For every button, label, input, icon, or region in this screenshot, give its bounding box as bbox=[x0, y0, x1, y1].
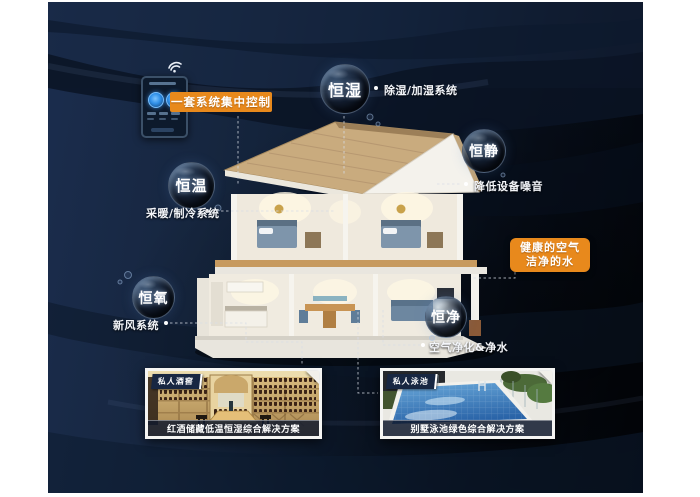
note-temperature-system: 采暖/制冷系统 bbox=[146, 205, 220, 221]
healthy-air-water-box: 健康的空气 洁净的水 bbox=[510, 238, 590, 272]
panel-stat bbox=[147, 118, 154, 120]
panel-stat bbox=[171, 118, 178, 120]
pool-card-corner-fold bbox=[539, 371, 552, 384]
pool-card: 私人泳池 别墅泳池绿色综合解决方案 bbox=[380, 368, 555, 439]
panel-stat bbox=[147, 112, 156, 115]
central-control-text: 一套系统集中控制 bbox=[171, 94, 271, 110]
bubble-label: 恒湿 bbox=[328, 77, 362, 101]
poster-page: 一套系统集中控制 健康的空气 洁净的水 恒湿 恒静 恒温 恒氧 恒净 除湿/加湿… bbox=[0, 0, 700, 497]
note-purity-system: 空气净化&净水 bbox=[429, 339, 508, 355]
note-quiet-system: 降低设备噪音 bbox=[474, 178, 543, 194]
pool-card-tag: 私人泳池 bbox=[386, 374, 438, 389]
central-control-label: 一套系统集中控制 bbox=[170, 92, 272, 112]
bubble-constant-quiet: 恒静 bbox=[462, 129, 506, 173]
bubble-constant-purity: 恒净 bbox=[425, 296, 467, 338]
wine-card-corner-fold bbox=[306, 371, 319, 384]
pool-card-caption: 别墅泳池绿色综合解决方案 bbox=[383, 420, 552, 436]
panel-dial-left bbox=[148, 92, 164, 108]
panel-header-bar bbox=[149, 82, 176, 85]
bubble-label: 恒净 bbox=[431, 307, 461, 327]
bubble-label: 恒静 bbox=[469, 141, 499, 161]
wifi-icon bbox=[166, 57, 184, 73]
bubble-constant-temperature: 恒温 bbox=[168, 162, 215, 209]
panel-stat bbox=[159, 112, 168, 115]
bubble-constant-oxygen: 恒氧 bbox=[132, 276, 175, 319]
poster-canvas: 一套系统集中控制 健康的空气 洁净的水 恒湿 恒静 恒温 恒氧 恒净 除湿/加湿… bbox=[48, 2, 643, 493]
panel-stat bbox=[171, 112, 180, 115]
note-humidity-system: 除湿/加湿系统 bbox=[384, 82, 458, 98]
panel-footer-bar bbox=[151, 128, 174, 132]
wine-card-caption: 红酒储藏低温恒湿综合解决方案 bbox=[148, 420, 319, 436]
wine-card-tag: 私人酒窖 bbox=[151, 374, 203, 389]
panel-stat bbox=[159, 118, 166, 120]
bubble-label: 恒氧 bbox=[139, 288, 169, 308]
highlight-line2: 洁净的水 bbox=[526, 255, 574, 269]
bubble-constant-humidity: 恒湿 bbox=[320, 64, 370, 114]
note-oxygen-system: 新风系统 bbox=[113, 317, 159, 333]
wine-cellar-card: 私人酒窖 红酒储藏低温恒湿综合解决方案 bbox=[145, 368, 322, 439]
bubble-label: 恒温 bbox=[175, 175, 207, 196]
highlight-line1: 健康的空气 bbox=[520, 241, 580, 255]
